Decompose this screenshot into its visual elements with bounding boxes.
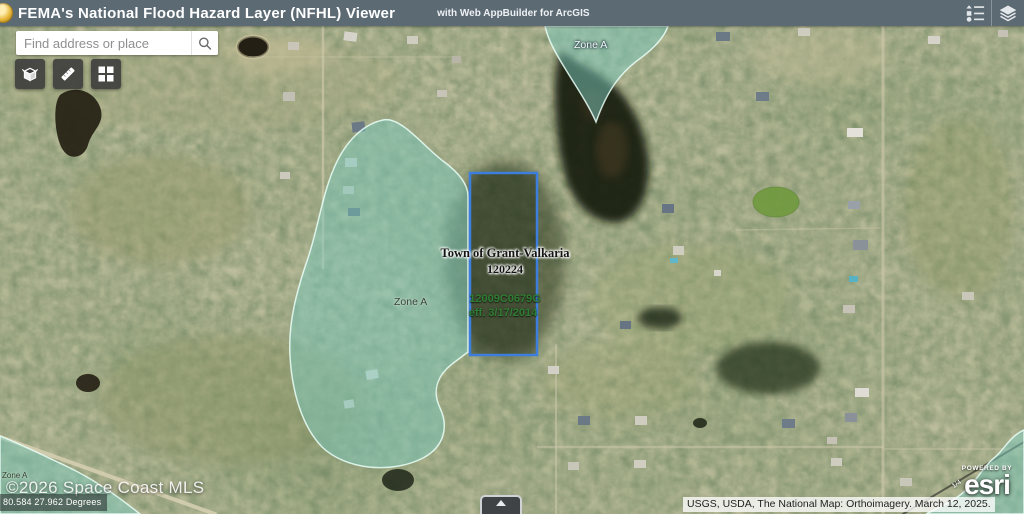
- cube-icon: [21, 65, 39, 84]
- coordinates-readout: 80.584 27.962 Degrees: [0, 494, 107, 511]
- attribution-toggle-button[interactable]: [480, 495, 522, 514]
- grid-icon: [97, 65, 115, 83]
- layers-icon: [998, 3, 1018, 23]
- chevron-up-icon: [496, 500, 506, 506]
- search-box: [16, 31, 218, 55]
- parcel-highlight: [470, 173, 537, 355]
- map-attribution: USGS, USDA, The National Map: Orthoimage…: [683, 497, 995, 512]
- esri-brand-text: esri: [951, 472, 1023, 498]
- layers-button[interactable]: [991, 0, 1024, 26]
- search-button[interactable]: [191, 31, 218, 55]
- esri-logo: POWERED BY esri: [951, 465, 1023, 498]
- basemap-3d-button[interactable]: [15, 59, 45, 89]
- measure-ruler-icon: [59, 64, 77, 84]
- nfhl-viewer-app: Zone A Zone A Zone A Town of Grant-Valka…: [0, 0, 1024, 514]
- legend-icon: [965, 3, 985, 23]
- aerial-imagery: [0, 0, 1024, 514]
- map-canvas[interactable]: Zone A Zone A Zone A Town of Grant-Valka…: [0, 0, 1024, 514]
- search-input[interactable]: [16, 31, 191, 55]
- app-header: FEMA's National Flood Hazard Layer (NFHL…: [0, 0, 1024, 26]
- measure-button[interactable]: [53, 59, 83, 89]
- search-icon: [198, 35, 212, 52]
- app-title: FEMA's National Flood Hazard Layer (NFHL…: [18, 5, 395, 22]
- basemap-gallery-button[interactable]: [91, 59, 121, 89]
- app-subtitle: with Web AppBuilder for ArcGIS: [437, 8, 589, 19]
- legend-button[interactable]: [959, 0, 991, 26]
- fema-logo: [0, 3, 13, 23]
